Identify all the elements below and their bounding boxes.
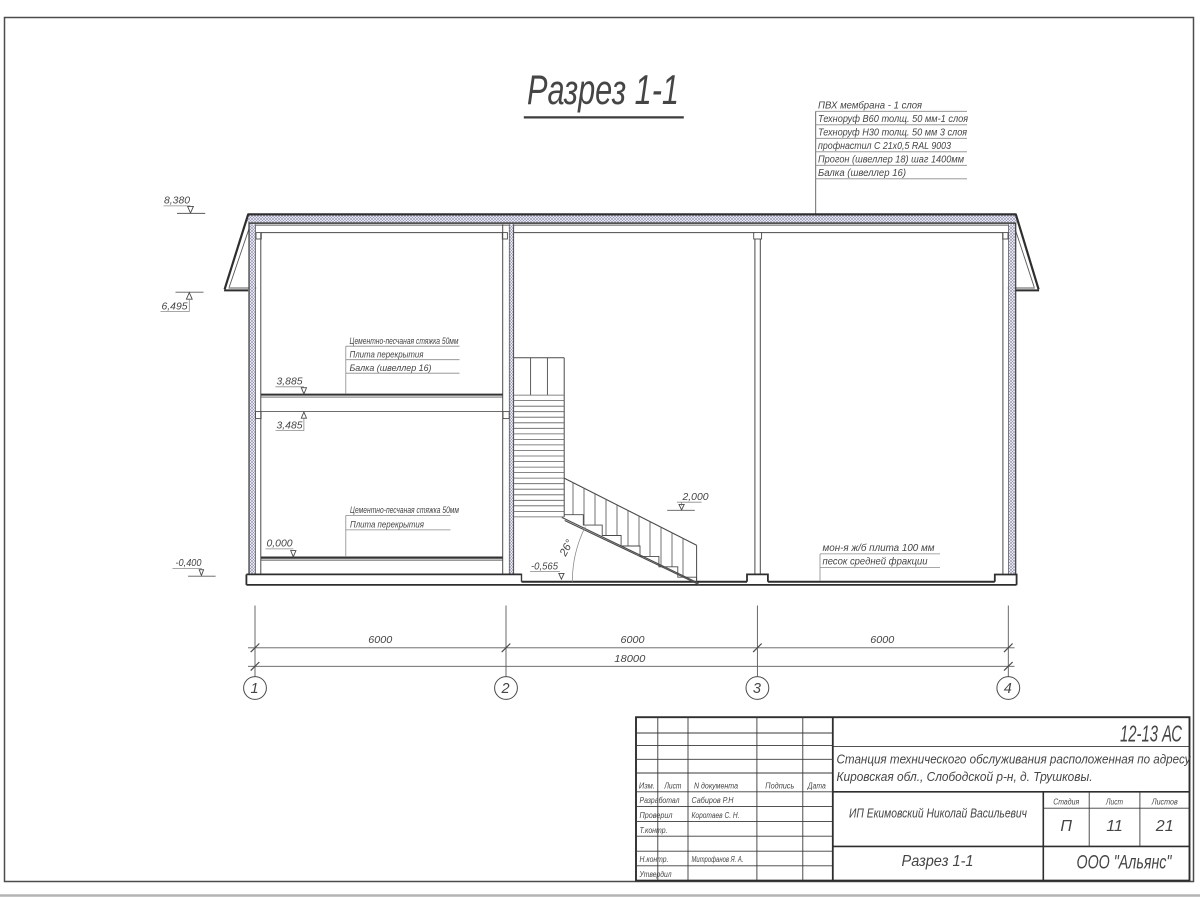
svg-text:Разрез 1-1: Разрез 1-1: [902, 853, 974, 870]
svg-text:11: 11: [1106, 818, 1123, 835]
svg-text:Лист: Лист: [1105, 797, 1123, 807]
svg-text:3,885: 3,885: [277, 376, 303, 388]
svg-text:8,380: 8,380: [164, 195, 190, 207]
svg-text:песок средней фракции: песок средней фракции: [823, 556, 928, 568]
svg-text:Цементно-песчаная стяжка 50мм: Цементно-песчаная стяжка 50мм: [350, 336, 459, 347]
svg-text:Техноруф Н30 толщ. 50 мм 3 сло: Техноруф Н30 толщ. 50 мм 3 слоя: [818, 127, 968, 139]
svg-text:Лист: Лист: [664, 782, 682, 791]
svg-text:Изм.: Изм.: [639, 782, 655, 791]
svg-text:1: 1: [250, 681, 258, 697]
svg-text:Утвердил: Утвердил: [639, 870, 672, 879]
svg-text:Разрез 1-1: Разрез 1-1: [527, 66, 679, 113]
svg-text:12-13 АС: 12-13 АС: [1120, 720, 1182, 746]
svg-text:6,495: 6,495: [162, 300, 188, 312]
svg-text:-0,400: -0,400: [176, 557, 202, 569]
svg-text:Проверил: Проверил: [640, 811, 673, 820]
svg-text:6000: 6000: [368, 634, 392, 646]
svg-text:N документа: N документа: [694, 782, 738, 791]
svg-text:6000: 6000: [621, 634, 645, 646]
svg-text:Стадия: Стадия: [1053, 797, 1079, 807]
svg-text:Листов: Листов: [1151, 797, 1178, 807]
svg-text:3,485: 3,485: [277, 420, 303, 432]
svg-text:Цементно-песчаная стяжка 50мм: Цементно-песчаная стяжка 50мм: [350, 505, 459, 516]
svg-text:18000: 18000: [614, 653, 645, 665]
svg-text:Сабиров Р.Н: Сабиров Р.Н: [692, 796, 734, 805]
svg-text:Митрофанов Я. А.: Митрофанов Я. А.: [692, 855, 744, 864]
svg-text:Коротаев С. Н.: Коротаев С. Н.: [692, 811, 740, 820]
svg-text:Плита перекрытия: Плита перекрытия: [350, 520, 424, 531]
svg-text:ООО "Альянс": ООО "Альянс": [1077, 852, 1173, 873]
svg-text:2: 2: [500, 681, 509, 697]
svg-text:ИП Екимовский Николай Васильев: ИП Екимовский Николай Васильевич: [849, 806, 1027, 821]
svg-text:-0,565: -0,565: [531, 561, 558, 573]
svg-text:21: 21: [1155, 818, 1174, 835]
svg-text:Разработал: Разработал: [640, 796, 680, 805]
svg-text:Прогон (швеллер 18) шаг 1400мм: Прогон (швеллер 18) шаг 1400мм: [818, 155, 964, 166]
svg-text:ПВХ мембрана - 1 слоя: ПВХ мембрана - 1 слоя: [818, 100, 923, 112]
svg-text:Балка (швеллер 16): Балка (швеллер 16): [350, 363, 432, 374]
svg-text:Н.контр.: Н.контр.: [640, 855, 669, 864]
svg-text:Станция технического обслужива: Станция технического обслуживания распол…: [837, 752, 1192, 767]
svg-text:0,000: 0,000: [267, 538, 293, 550]
svg-text:Т.контр.: Т.контр.: [640, 826, 668, 835]
svg-text:Кировская обл., Слободской р-н: Кировская обл., Слободской р-н, д. Трушк…: [837, 769, 1093, 784]
svg-text:4: 4: [1004, 681, 1012, 697]
svg-text:Плита перекрытия: Плита перекрытия: [350, 349, 424, 360]
svg-text:П: П: [1060, 818, 1072, 835]
svg-text:Подпись: Подпись: [765, 782, 794, 791]
svg-text:Балка (швеллер 16): Балка (швеллер 16): [818, 168, 906, 179]
svg-text:6000: 6000: [870, 634, 894, 646]
svg-text:3: 3: [753, 681, 761, 697]
svg-text:Техноруф В60 толщ. 50 мм-1 сло: Техноруф В60 толщ. 50 мм-1 слоя: [818, 113, 969, 125]
svg-text:мон-я ж/б плита 100 мм: мон-я ж/б плита 100 мм: [823, 542, 935, 554]
svg-text:2,000: 2,000: [682, 491, 709, 503]
svg-text:Дата: Дата: [807, 782, 826, 791]
svg-text:профнастил С 21х0,5 RAL 9003: профнастил С 21х0,5 RAL 9003: [818, 140, 951, 152]
